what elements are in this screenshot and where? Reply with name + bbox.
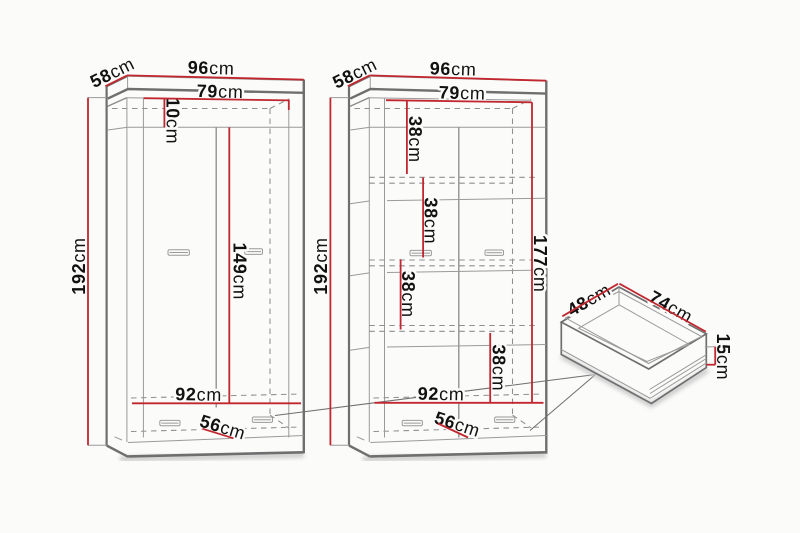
svg-text:10cm: 10cm [163,98,183,145]
svg-text:38cm: 38cm [405,116,425,163]
svg-text:92cm: 92cm [418,384,465,405]
svg-text:192cm: 192cm [311,237,331,295]
svg-text:96cm: 96cm [187,57,234,78]
svg-text:192cm: 192cm [69,237,89,295]
svg-text:38cm: 38cm [489,345,509,392]
svg-text:177cm: 177cm [530,235,550,293]
svg-text:149cm: 149cm [230,243,250,301]
svg-text:96cm: 96cm [429,58,476,79]
svg-text:92cm: 92cm [175,384,222,405]
